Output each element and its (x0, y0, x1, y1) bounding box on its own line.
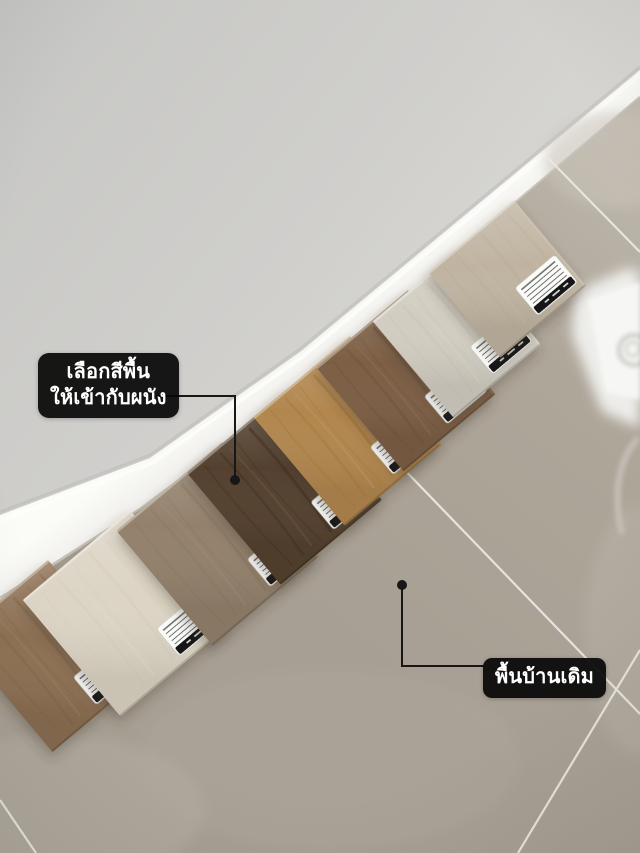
wall-note-line2: ให้เข้ากับผนัง (50, 385, 167, 411)
floor-note-text: พื้นบ้านเดิม (495, 664, 594, 690)
floor-note-callout: พื้นบ้านเดิม (483, 658, 606, 698)
floor-note-pointer-h (401, 665, 484, 667)
scene-photo (0, 0, 640, 853)
floor-note-pointer-v (401, 587, 403, 667)
wall-note-line1: เลือกสีพื้น (50, 359, 167, 385)
wall-note-pointer-dot (230, 475, 240, 485)
wall-note-callout: เลือกสีพื้น ให้เข้ากับผนัง (38, 353, 179, 418)
wall-note-pointer-v (234, 395, 236, 480)
vignette (0, 0, 640, 853)
room-photo: เลือกสีพื้น ให้เข้ากับผนัง พื้นบ้านเดิม (0, 0, 640, 853)
